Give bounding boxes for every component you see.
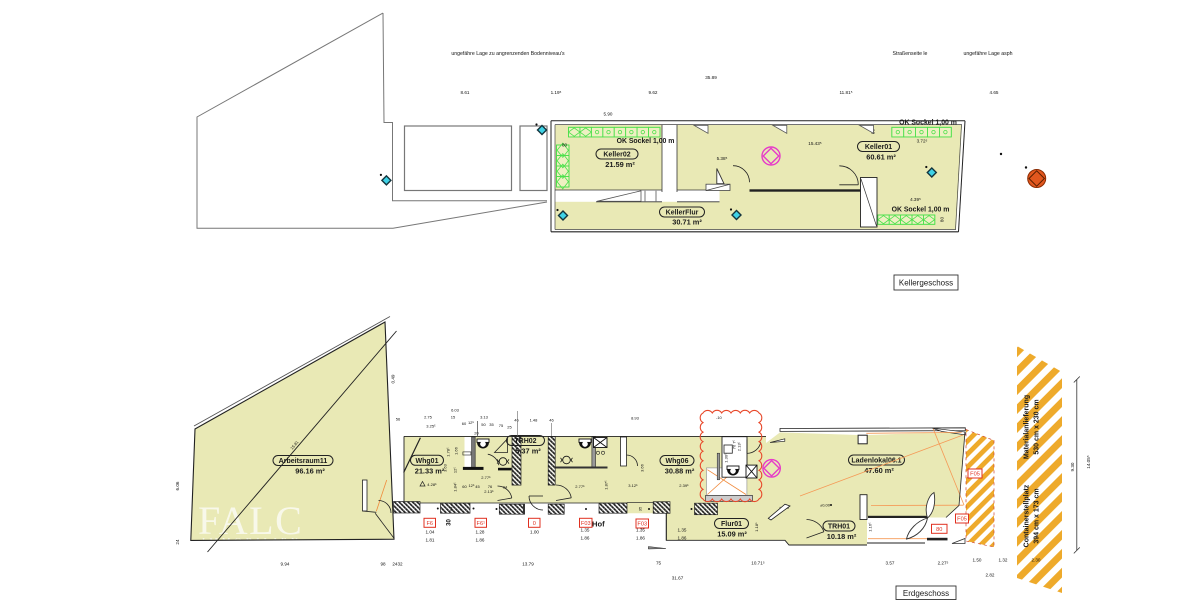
svg-text:31.67: 31.67 [672, 576, 684, 581]
svg-text:80: 80 [936, 527, 942, 533]
svg-text:4.28⁵: 4.28⁵ [427, 482, 437, 487]
svg-text:-10: -10 [716, 415, 723, 420]
svg-text:20: 20 [474, 431, 479, 436]
svg-text:46: 46 [514, 418, 519, 423]
svg-text:5.38⁵: 5.38⁵ [717, 156, 728, 161]
svg-text:2.30: 2.30 [1032, 558, 1041, 563]
svg-text:14.05⁵: 14.05⁵ [1086, 455, 1091, 468]
svg-text:2.75: 2.75 [424, 415, 433, 420]
svg-text:Keller02: Keller02 [603, 152, 630, 159]
svg-text:8.93: 8.93 [631, 416, 640, 421]
svg-text:11.81⁵: 11.81⁵ [839, 90, 852, 95]
svg-text:60: 60 [462, 484, 467, 489]
svg-text:80: 80 [940, 217, 945, 223]
svg-text:3.57: 3.57 [886, 561, 895, 566]
svg-text:3.72⁵: 3.72⁵ [917, 139, 928, 144]
svg-text:15: 15 [451, 415, 456, 420]
svg-text:Materialanlieferung: Materialanlieferung [1024, 395, 1031, 459]
svg-text:Erdgeschoss: Erdgeschoss [903, 589, 949, 598]
svg-text:F05: F05 [970, 472, 980, 478]
svg-text:2.27⁵: 2.27⁵ [938, 561, 949, 566]
svg-text:1.16⁵: 1.16⁵ [868, 522, 873, 532]
svg-text:2.13⁵: 2.13⁵ [484, 489, 494, 494]
svg-text:46: 46 [549, 418, 554, 423]
svg-text:Whg06: Whg06 [666, 458, 689, 465]
svg-text:9.62: 9.62 [649, 90, 658, 95]
svg-text:21.33 m²: 21.33 m² [415, 467, 445, 476]
svg-text:2432: 2432 [392, 562, 403, 567]
svg-text:1.86: 1.86 [678, 536, 687, 541]
svg-text:35: 35 [489, 422, 494, 427]
svg-text:Whg01: Whg01 [416, 458, 439, 465]
svg-text:30.71 m²: 30.71 m² [672, 218, 702, 227]
svg-text:6.06: 6.06 [175, 481, 180, 490]
svg-text:±0,00: ±0,00 [820, 503, 831, 508]
svg-text:TRH02: TRH02 [514, 438, 536, 445]
svg-text:96.16 m²: 96.16 m² [295, 467, 325, 476]
svg-text:394 cm x 173 cm: 394 cm x 173 cm [1034, 488, 1041, 543]
svg-text:0: 0 [533, 521, 536, 527]
svg-text:1.48: 1.48 [530, 418, 539, 423]
svg-text:3.12⁵: 3.12⁵ [628, 483, 638, 488]
svg-text:1.04: 1.04 [426, 530, 435, 535]
svg-text:6.03: 6.03 [451, 408, 460, 413]
svg-text:OK Sockel 1,00 m: OK Sockel 1,00 m [892, 207, 950, 214]
svg-text:3.13: 3.13 [480, 415, 489, 420]
svg-text:1.35: 1.35 [678, 528, 687, 533]
svg-text:50: 50 [481, 422, 486, 427]
svg-text:1.78⁵: 1.78⁵ [446, 447, 451, 457]
svg-text:OK Sockel 1,00 m: OK Sockel 1,00 m [617, 138, 675, 145]
svg-text:3.66: 3.66 [640, 463, 645, 472]
svg-text:1.35: 1.35 [636, 528, 645, 533]
svg-text:15.09 m²: 15.09 m² [717, 530, 747, 539]
svg-text:3.25⁵: 3.25⁵ [426, 424, 436, 429]
svg-text:56: 56 [396, 417, 401, 422]
svg-text:30: 30 [447, 519, 453, 526]
svg-text:0.49: 0.49 [391, 374, 396, 383]
svg-text:1.87⁵: 1.87⁵ [604, 480, 609, 490]
svg-text:Kellergeschoss: Kellergeschoss [899, 279, 953, 288]
svg-text:ungefähre Lage zu angrenzenden: ungefähre Lage zu angrenzenden Bodennive… [451, 51, 565, 57]
svg-text:13.79: 13.79 [522, 562, 534, 567]
svg-text:OK Sockel 1,00 m: OK Sockel 1,00 m [899, 120, 957, 127]
svg-text:60: 60 [462, 421, 467, 426]
svg-text:1.66: 1.66 [454, 446, 459, 455]
svg-text:IMMOBILIEN: IMMOBILIEN [202, 538, 302, 548]
svg-text:2.39⁵: 2.39⁵ [679, 483, 689, 488]
svg-text:Flur01: Flur01 [721, 521, 742, 528]
svg-text:75: 75 [656, 561, 662, 566]
svg-text:12⁵: 12⁵ [468, 483, 474, 488]
svg-text:5.37 m²: 5.37 m² [515, 447, 541, 456]
svg-text:12⁵: 12⁵ [468, 420, 474, 425]
svg-text:Containerstellplatz: Containerstellplatz [1024, 484, 1031, 547]
svg-text:12⁵: 12⁵ [453, 467, 458, 473]
svg-text:2.77⁵: 2.77⁵ [575, 484, 585, 489]
svg-text:F6¹: F6¹ [477, 521, 486, 527]
svg-text:KellerFlur: KellerFlur [666, 210, 699, 217]
svg-text:1.00: 1.00 [530, 530, 539, 535]
svg-text:ungefähre Lage asph: ungefähre Lage asph [963, 51, 1012, 57]
svg-text:F05: F05 [957, 517, 967, 523]
svg-text:Straßenseite le: Straßenseite le [893, 51, 928, 57]
svg-text:530 cm x 230 cm: 530 cm x 230 cm [1034, 399, 1041, 454]
svg-text:5.90: 5.90 [604, 112, 613, 117]
svg-text:2.13⁵: 2.13⁵ [737, 441, 742, 451]
svg-text:F03: F03 [581, 521, 591, 527]
svg-text:25: 25 [507, 425, 512, 430]
svg-text:1.18⁵: 1.18⁵ [754, 522, 759, 532]
svg-text:10.18 m²: 10.18 m² [827, 532, 857, 541]
svg-text:2.82: 2.82 [986, 573, 995, 578]
svg-text:4.39⁵: 4.39⁵ [910, 197, 921, 202]
svg-text:FALC: FALC [198, 498, 303, 543]
svg-text:30.88 m²: 30.88 m² [665, 467, 695, 476]
svg-text:1.35: 1.35 [581, 528, 590, 533]
svg-text:94: 94 [449, 506, 454, 511]
svg-text:60.61 m²: 60.61 m² [866, 153, 896, 162]
svg-text:1.30⁵: 1.30⁵ [724, 453, 729, 463]
svg-text:35: 35 [638, 506, 643, 511]
svg-text:9.30: 9.30 [1070, 462, 1075, 471]
svg-text:Hof: Hof [592, 520, 605, 529]
svg-text:1.86: 1.86 [581, 536, 590, 541]
svg-text:Keller01: Keller01 [865, 144, 892, 151]
svg-text:35.89: 35.89 [705, 75, 717, 80]
svg-text:98: 98 [380, 562, 386, 567]
svg-text:1.86: 1.86 [476, 538, 485, 543]
svg-text:F6: F6 [426, 521, 433, 527]
svg-text:9.94: 9.94 [281, 562, 290, 567]
svg-text:2.77⁵: 2.77⁵ [481, 475, 491, 480]
svg-text:1.86: 1.86 [636, 536, 645, 541]
svg-text:1.32: 1.32 [999, 558, 1008, 563]
svg-text:TRH01: TRH01 [828, 524, 850, 531]
svg-text:8.61: 8.61 [461, 90, 470, 95]
svg-text:75: 75 [499, 423, 504, 428]
svg-text:Arbeitsraum11: Arbeitsraum11 [279, 458, 328, 465]
svg-text:1.19⁵: 1.19⁵ [551, 90, 562, 95]
svg-text:10.71⁵: 10.71⁵ [751, 561, 764, 566]
svg-text:3.63: 3.63 [443, 463, 448, 472]
svg-text:15.43⁵: 15.43⁵ [808, 141, 821, 146]
svg-text:80: 80 [562, 143, 568, 148]
svg-text:21.59 m²: 21.59 m² [605, 160, 635, 169]
svg-text:4.65: 4.65 [990, 90, 999, 95]
svg-text:1.84⁵: 1.84⁵ [453, 482, 458, 492]
svg-text:1.28: 1.28 [476, 530, 485, 535]
svg-text:45: 45 [475, 484, 480, 489]
svg-text:1.81: 1.81 [426, 538, 435, 543]
svg-text:24: 24 [175, 539, 180, 545]
svg-text:1.50: 1.50 [973, 558, 982, 563]
